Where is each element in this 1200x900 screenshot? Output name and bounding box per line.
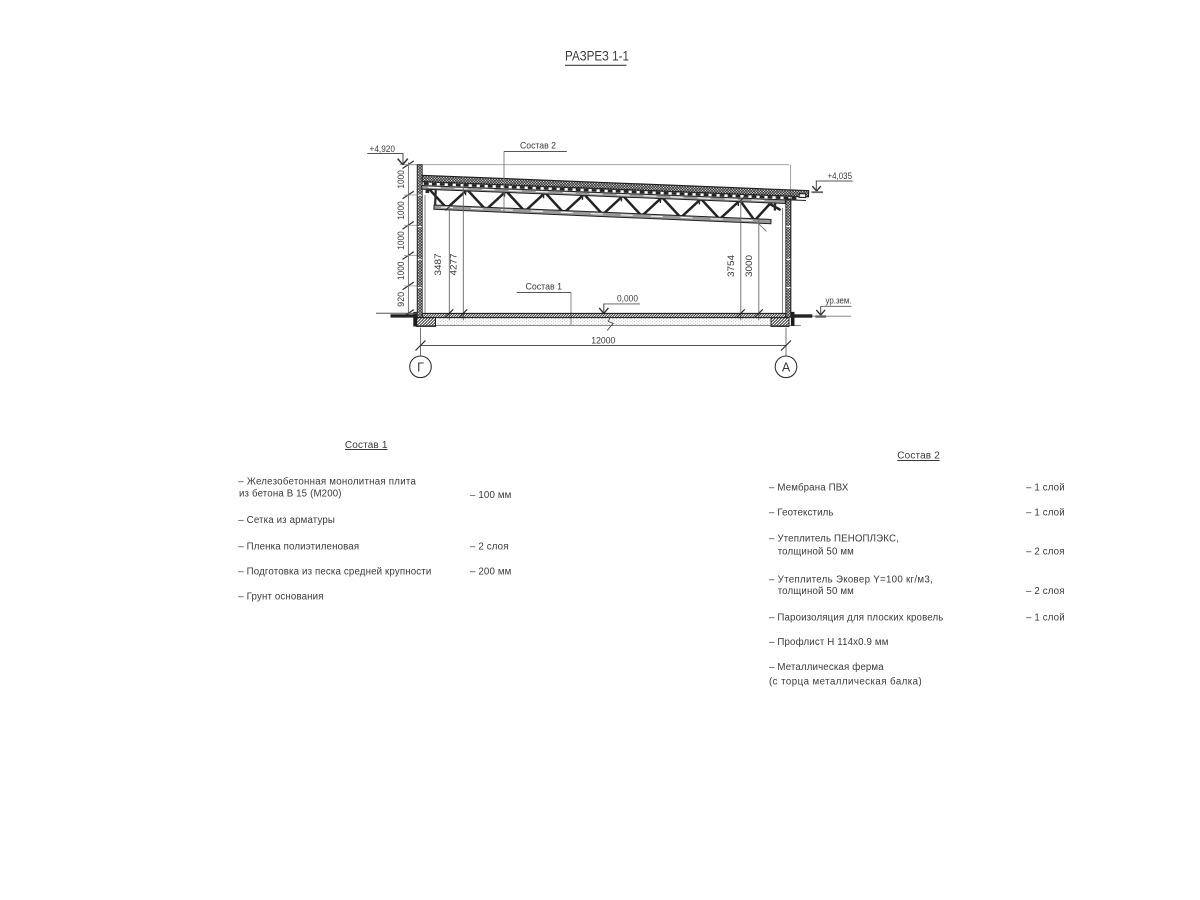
svg-text:1000: 1000 xyxy=(396,231,406,250)
svg-text:1000: 1000 xyxy=(396,170,406,189)
svg-text:– Пароизоляция для плоских кро: – Пароизоляция для плоских кровель xyxy=(769,612,944,623)
svg-text:Состав 2: Состав 2 xyxy=(520,140,556,151)
svg-text:– 1 слой: – 1 слой xyxy=(1026,612,1065,623)
svg-text:Состав 1: Состав 1 xyxy=(526,281,563,292)
svg-text:+4,035: +4,035 xyxy=(828,171,853,182)
svg-text:ур.зем.: ур.зем. xyxy=(826,296,852,306)
svg-text:12000: 12000 xyxy=(591,336,615,347)
svg-text:– Грунт основания: – Грунт основания xyxy=(238,592,323,603)
svg-text:Г: Г xyxy=(417,360,424,374)
svg-text:РАЗРЕЗ 1-1: РАЗРЕЗ 1-1 xyxy=(565,49,629,64)
svg-text:– Утеплитель ПЕНОПЛЭКС,: – Утеплитель ПЕНОПЛЭКС, xyxy=(769,534,899,545)
svg-text:– Профлист Н 114х0.9 мм: – Профлист Н 114х0.9 мм xyxy=(769,637,889,648)
svg-text:920: 920 xyxy=(396,292,406,307)
svg-text:Состав 2: Состав 2 xyxy=(897,451,940,462)
svg-text:толщиной 50 мм: толщиной 50 мм xyxy=(778,547,854,558)
svg-text:4277: 4277 xyxy=(448,254,459,276)
svg-text:– Геотекстиль: – Геотекстиль xyxy=(769,507,834,518)
svg-text:– 200 мм: – 200 мм xyxy=(470,567,511,578)
svg-text:А: А xyxy=(782,360,791,374)
svg-text:1000: 1000 xyxy=(396,262,406,281)
svg-text:из бетона В 15 (М200): из бетона В 15 (М200) xyxy=(239,488,342,499)
svg-text:3487: 3487 xyxy=(433,254,444,276)
svg-text:– 2 слоя: – 2 слоя xyxy=(1026,586,1065,597)
svg-text:– 1 слой: – 1 слой xyxy=(1026,507,1065,518)
svg-text:– Металлическая ферма: – Металлическая ферма xyxy=(769,662,884,673)
svg-text:– Железобетонная монолитная п: – Железобетонная монолитная плита xyxy=(238,477,416,488)
svg-text:– 2 слоя: – 2 слоя xyxy=(1026,547,1065,558)
svg-text:– Пленка полиэтиленовая: – Пленка полиэтиленовая xyxy=(238,542,359,553)
svg-text:– 100 мм: – 100 мм xyxy=(470,490,511,501)
svg-text:1000: 1000 xyxy=(396,201,406,220)
svg-text:– Мембрана ПВХ: – Мембрана ПВХ xyxy=(769,483,849,494)
svg-text:3754: 3754 xyxy=(726,255,737,277)
svg-text:– 2 слоя: – 2 слоя xyxy=(470,542,509,553)
svg-text:– Сетка из арматуры: – Сетка из арматуры xyxy=(238,515,335,526)
svg-text:(с торца металлическая балка): (с торца металлическая балка) xyxy=(769,677,922,688)
svg-text:3000: 3000 xyxy=(744,255,755,277)
svg-text:– Утеплитель Эковер Y=100 кг/м: – Утеплитель Эковер Y=100 кг/м3, xyxy=(769,574,933,585)
svg-text:– Подготовка из песка средней: – Подготовка из песка средней крупности xyxy=(238,567,431,578)
svg-text:– 1 слой: – 1 слой xyxy=(1026,483,1065,494)
svg-text:толщиной 50 мм: толщиной 50 мм xyxy=(778,586,854,597)
svg-text:0,000: 0,000 xyxy=(617,293,638,304)
